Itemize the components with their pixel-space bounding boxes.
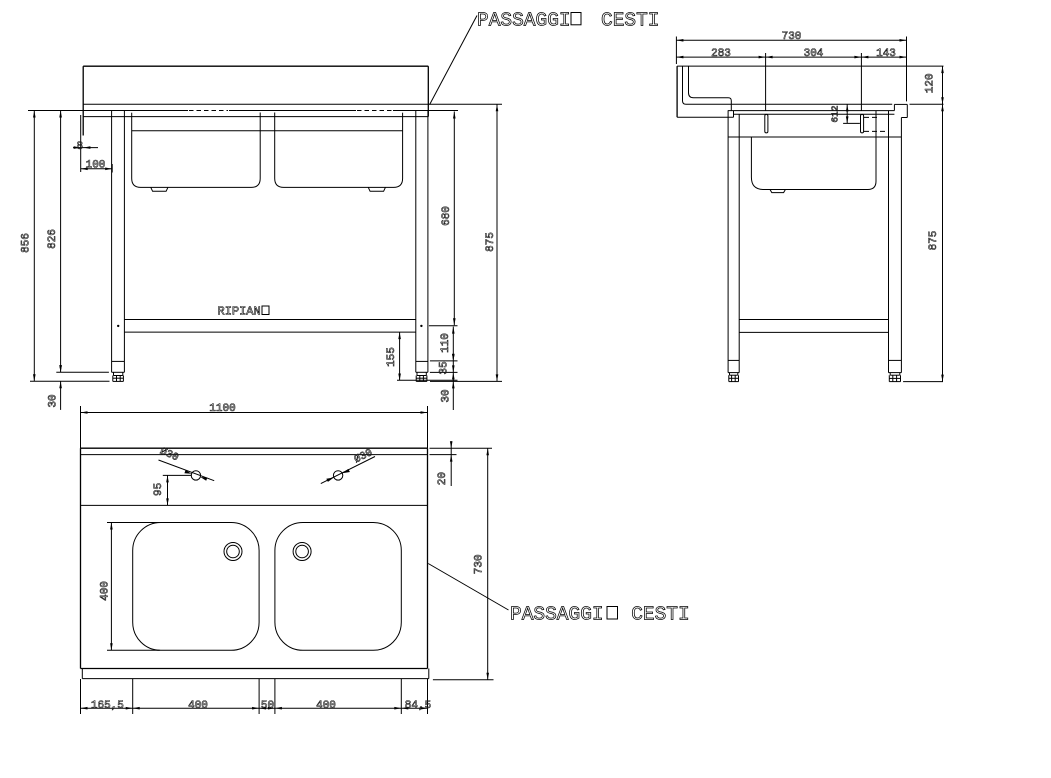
svg-text:CESTI: CESTI — [601, 9, 660, 31]
svg-text:680: 680 — [441, 206, 453, 226]
svg-text:95: 95 — [153, 483, 165, 496]
svg-text:826: 826 — [47, 229, 59, 249]
svg-text:875: 875 — [928, 231, 940, 251]
svg-text:RIPIAN: RIPIAN — [218, 304, 261, 318]
svg-text:PASSAGGI: PASSAGGI — [510, 604, 604, 626]
svg-text:20: 20 — [437, 472, 449, 485]
svg-text:856: 856 — [20, 233, 32, 253]
svg-text:PASSAGGI: PASSAGGI — [477, 9, 571, 31]
svg-text:400: 400 — [100, 581, 112, 601]
svg-text:CESTI: CESTI — [631, 604, 690, 626]
svg-text:84,5: 84,5 — [405, 700, 431, 712]
svg-text:730: 730 — [473, 554, 485, 574]
svg-text:143: 143 — [876, 48, 896, 60]
svg-text:35: 35 — [439, 361, 451, 374]
svg-text:400: 400 — [316, 700, 336, 712]
svg-text:120: 120 — [925, 73, 937, 93]
svg-text:110: 110 — [440, 333, 452, 353]
svg-text:304: 304 — [804, 48, 824, 60]
svg-text:100: 100 — [86, 159, 106, 171]
svg-text:50: 50 — [261, 700, 274, 712]
svg-text:875: 875 — [485, 232, 497, 252]
svg-text:612: 612 — [830, 105, 841, 122]
svg-text:730: 730 — [782, 31, 802, 43]
svg-text:30: 30 — [48, 394, 60, 407]
svg-text:283: 283 — [711, 48, 731, 60]
svg-text:8: 8 — [76, 141, 83, 153]
svg-text:400: 400 — [188, 700, 208, 712]
svg-text:1100: 1100 — [209, 403, 235, 415]
svg-text:30: 30 — [441, 389, 453, 402]
svg-text:165,5: 165,5 — [91, 700, 124, 712]
svg-text:155: 155 — [386, 347, 398, 367]
